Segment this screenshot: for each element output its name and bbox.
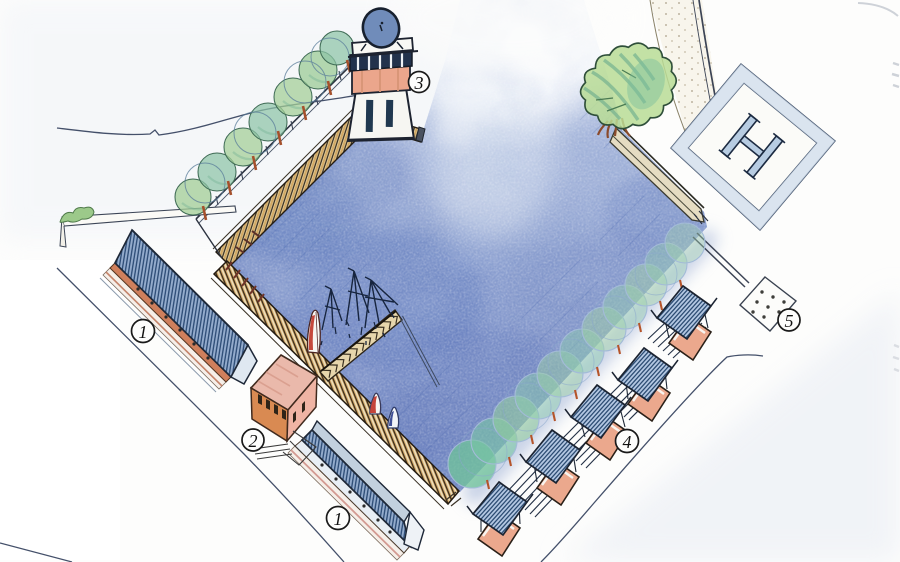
svg-text:4: 4 [623, 432, 632, 452]
svg-text:1: 1 [334, 509, 343, 529]
svg-text:1: 1 [139, 322, 148, 342]
svg-text:5: 5 [785, 311, 794, 331]
svg-text:3: 3 [414, 73, 424, 93]
svg-text:2: 2 [249, 431, 258, 451]
